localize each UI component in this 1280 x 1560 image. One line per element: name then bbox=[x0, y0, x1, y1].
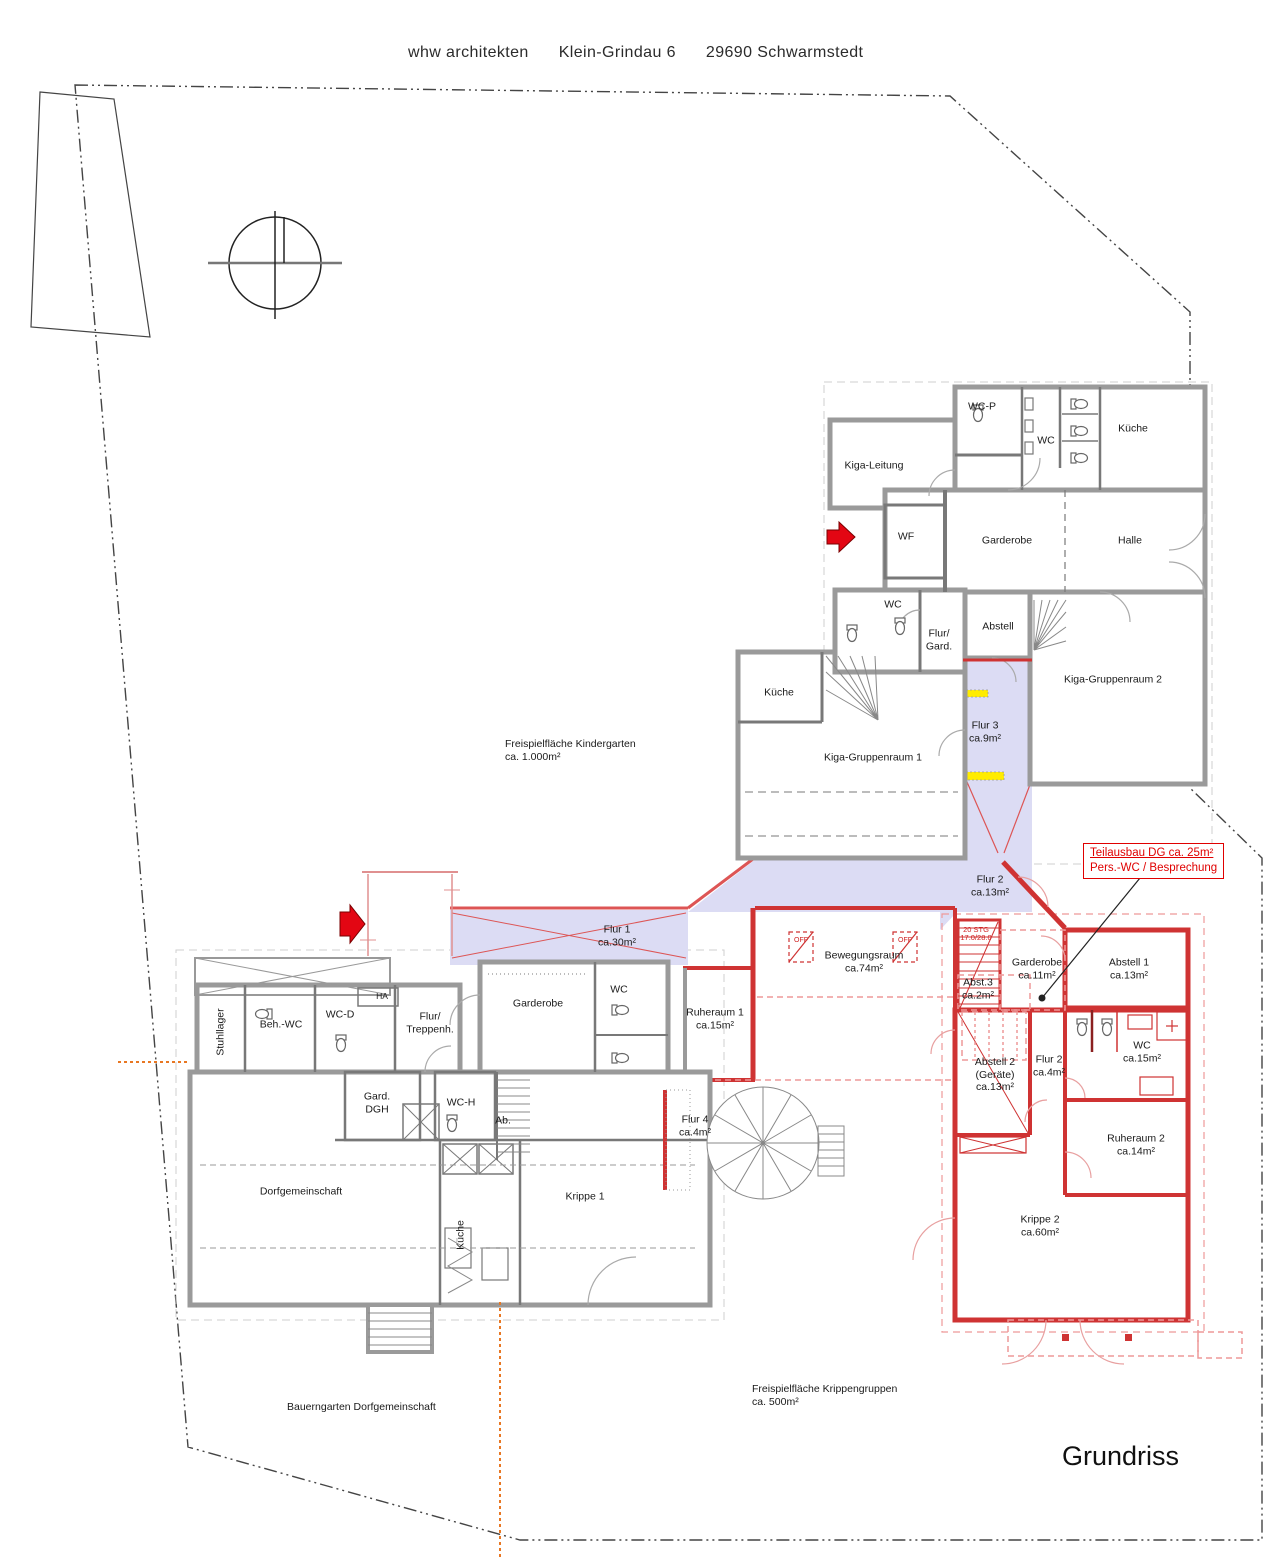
north-symbol-icon bbox=[208, 211, 342, 319]
room-label-ab: Ab. bbox=[495, 1115, 511, 1128]
room-label-ruheraum-2: Ruheraum 2 ca.14m² bbox=[1107, 1132, 1165, 1157]
room-label-wc-h: WC-H bbox=[447, 1097, 476, 1110]
spiral-stair bbox=[707, 1087, 844, 1199]
room-label-garderobe-dgh: Garderobe bbox=[513, 998, 563, 1011]
room-label-garderobe-neu: Garderobe ca.11m² bbox=[1012, 956, 1062, 981]
room-label-flur-1: Flur 1 ca.30m² bbox=[598, 923, 636, 948]
room-label-abst-3: Abst.3 ca.2m² bbox=[962, 976, 994, 1001]
stair-note: 20 STG 17.0/28.0 bbox=[960, 926, 991, 943]
room-label-abstell-kiga: Abstell bbox=[982, 621, 1014, 634]
room-label-abstell-2: Abstell 2 (Geräte) ca.13m² bbox=[975, 1056, 1015, 1094]
room-label-flur-2-neu: Flur 2 ca.13m² bbox=[971, 873, 1009, 898]
room-label-krippe-1: Krippe 1 bbox=[565, 1191, 604, 1204]
room-label-kueche-kiga: Küche bbox=[764, 687, 794, 700]
room-label-ha: HA bbox=[376, 991, 388, 1001]
room-label-wc-kiga: WC bbox=[884, 599, 902, 612]
room-label-flur-2-klein: Flur 2 ca.4m² bbox=[1033, 1053, 1065, 1078]
room-label-abstell-1: Abstell 1 ca.13m² bbox=[1109, 956, 1149, 981]
room-label-wc-dgh: WC bbox=[610, 984, 628, 997]
room-label-stuhllager: Stuhllager bbox=[215, 1008, 228, 1055]
room-label-garderobe-kiga: Garderobe bbox=[982, 535, 1032, 548]
room-label-bewegungsraum: Bewegungsraum ca.74m² bbox=[825, 949, 904, 974]
room-label-wc-d: WC-D bbox=[326, 1009, 355, 1022]
drawing-title: Grundriss bbox=[1062, 1441, 1179, 1472]
room-label-gard-dgh: Gard. DGH bbox=[364, 1090, 390, 1115]
room-label-flur-3: Flur 3 ca.9m² bbox=[969, 719, 1001, 744]
neighbour-parcel bbox=[31, 92, 150, 337]
room-label-wc-neu: WC ca.15m² bbox=[1123, 1039, 1161, 1064]
room-label-kiga-gruppenraum-2: Kiga-Gruppenraum 2 bbox=[1064, 674, 1162, 687]
architect-city: 29690 Schwarmstedt bbox=[706, 44, 864, 62]
off-label-1: OFF bbox=[794, 937, 808, 945]
room-label-beh-wc: Beh.-WC bbox=[260, 1019, 303, 1032]
room-label-ruheraum-1: Ruheraum 1 ca.15m² bbox=[686, 1006, 744, 1031]
site-label-bauerngarten: Bauerngarten Dorfgemeinschaft bbox=[287, 1401, 436, 1414]
floor-plan-drawing bbox=[0, 0, 1280, 1560]
room-label-kiga-gruppenraum-1: Kiga-Gruppenraum 1 bbox=[824, 752, 922, 765]
room-label-dorfgemeinschaft: Dorfgemeinschaft bbox=[260, 1186, 342, 1199]
annotation-teilausbau: Teilausbau DG ca. 25m² Pers.-WC / Bespre… bbox=[1083, 843, 1224, 879]
room-label-kueche-og: Küche bbox=[1118, 423, 1148, 436]
floor-plan-page: whw architekten Klein-Grindau 6 29690 Sc… bbox=[0, 0, 1280, 1560]
room-label-kiga-leitung: Kiga-Leitung bbox=[845, 460, 904, 473]
entrance-arrow-kiga-icon bbox=[827, 522, 855, 552]
drawing-header: whw architekten Klein-Grindau 6 29690 Sc… bbox=[408, 44, 863, 62]
annotation-line1: Teilausbau DG ca. 25m² bbox=[1090, 846, 1217, 861]
room-label-wc-nord: WC bbox=[1037, 435, 1055, 448]
entrance-arrow-dgh-icon bbox=[340, 905, 365, 943]
architect-name: whw architekten bbox=[408, 44, 529, 62]
room-label-flur-gard: Flur/ Gard. bbox=[926, 627, 952, 652]
site-label-freispiel-kindergarten: Freispielfläche Kindergarten ca. 1.000m² bbox=[505, 738, 636, 763]
site-label-freispiel-krippe: Freispielfläche Krippengruppen ca. 500m² bbox=[752, 1383, 897, 1408]
room-label-wc-p: WC-P bbox=[968, 401, 996, 414]
annotation-line2: Pers.-WC / Besprechung bbox=[1090, 862, 1217, 874]
architect-address: Klein-Grindau 6 bbox=[559, 44, 676, 62]
room-label-krippe-2: Krippe 2 ca.60m² bbox=[1020, 1213, 1059, 1238]
room-label-flur-4: Flur 4 ca.4m² bbox=[679, 1113, 711, 1138]
room-label-kueche-dgh: Küche bbox=[455, 1220, 468, 1250]
off-label-2: OFF bbox=[898, 937, 912, 945]
room-label-halle: Halle bbox=[1118, 535, 1142, 548]
room-label-flur-treppenhaus: Flur/ Treppenh. bbox=[406, 1010, 453, 1035]
room-label-wf: WF bbox=[898, 531, 914, 544]
